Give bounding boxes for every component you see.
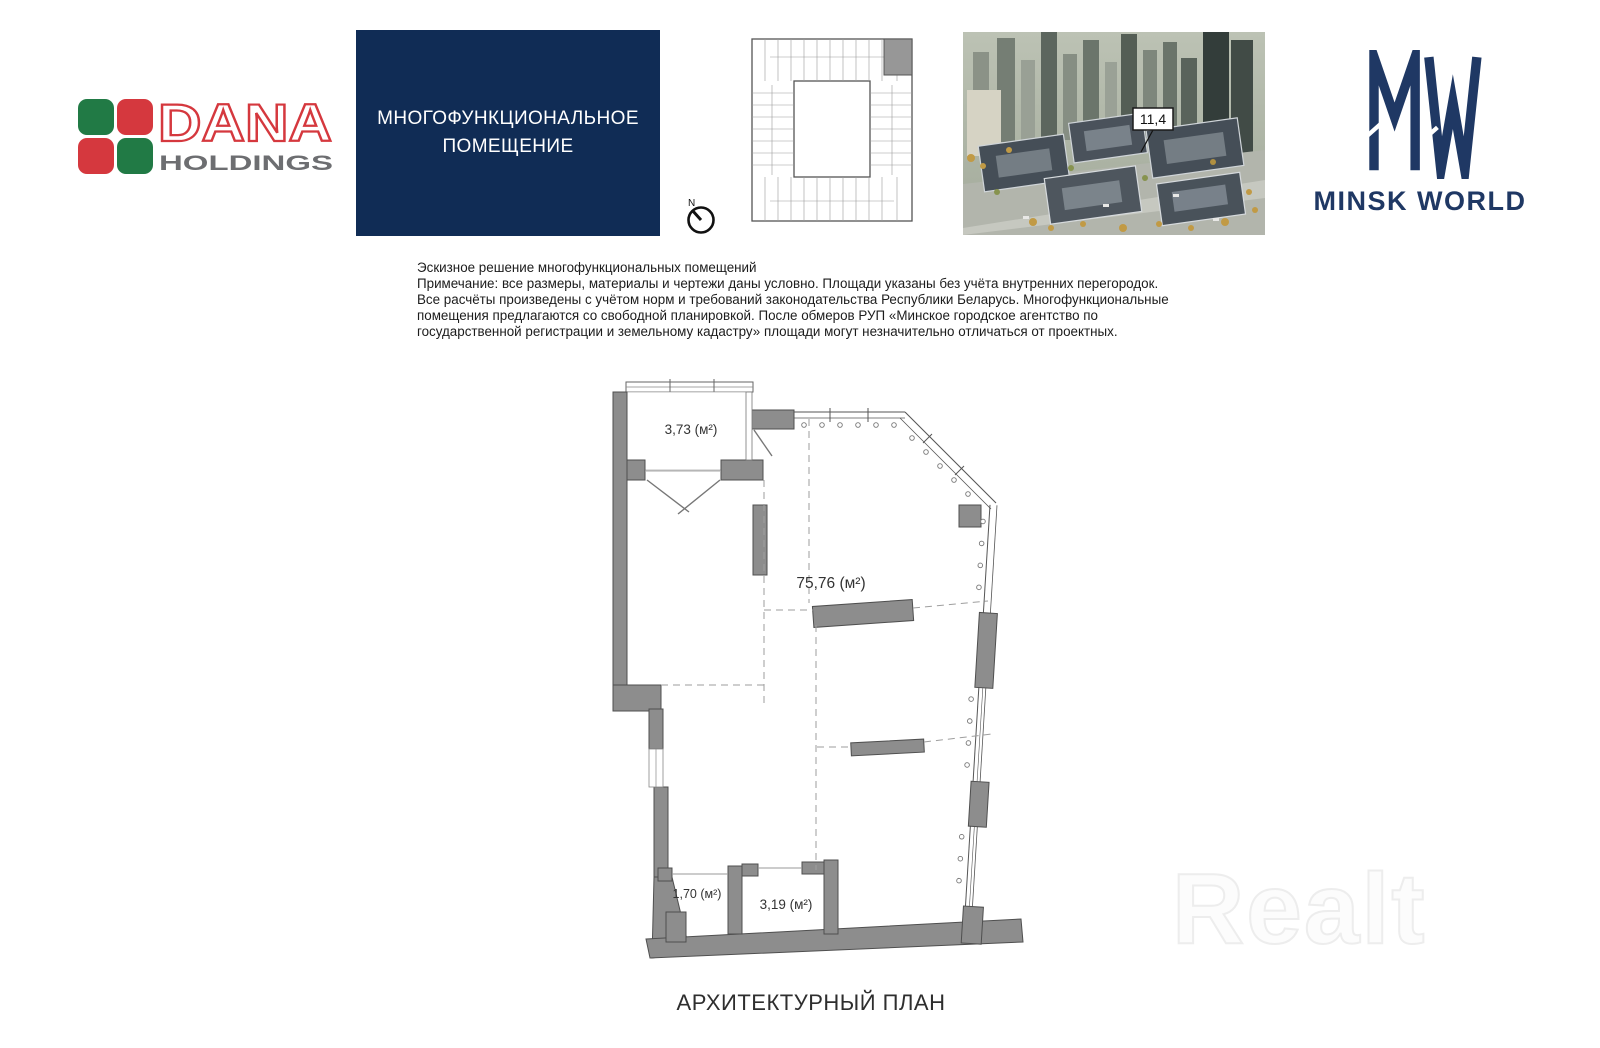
title-box: МНОГОФУНКЦИОНАЛЬНОЕ ПОМЕЩЕНИЕ xyxy=(356,30,660,236)
minsk-world-monogram-icon xyxy=(1362,50,1482,179)
notes-text: Эскизное решение многофункциональных пом… xyxy=(417,260,1229,340)
dana-subname-text: HOLDINGS xyxy=(159,151,333,175)
dana-square-red-2 xyxy=(78,138,114,174)
north-compass: N xyxy=(680,195,720,237)
minsk-world-wordmark: MINSK WORLD xyxy=(1295,186,1545,217)
dana-square-green-2 xyxy=(117,138,153,174)
realt-watermark: Realt xyxy=(1172,852,1427,967)
render-image: 11,4 xyxy=(963,32,1265,235)
key-plan xyxy=(748,33,916,225)
top-window-band xyxy=(794,408,905,427)
dana-square-red-1 xyxy=(117,99,153,135)
plan-caption: АРХИТЕКТУРНЫЙ ПЛАН xyxy=(596,990,1026,1016)
diagonal-window-band xyxy=(900,412,996,509)
north-label: N xyxy=(688,198,695,209)
right-wall xyxy=(953,504,1008,944)
storage-small-area-label: 1,70 (м²) xyxy=(673,887,722,901)
floor-plan-drawing: 3,73 (м²) 75,76 (м²) 1,70 (м²) 3,19 (м²) xyxy=(596,372,1026,968)
title-box-text: МНОГОФУНКЦИОНАЛЬНОЕ ПОМЕЩЕНИЕ xyxy=(351,105,665,160)
compass-needle-icon xyxy=(692,210,701,220)
balcony-area-label: 3,73 (м²) xyxy=(665,422,718,437)
render-building-label: 11,4 xyxy=(1140,111,1166,127)
partition-dashed-lines xyxy=(661,419,992,870)
walls xyxy=(613,392,1023,958)
main-area-label: 75,76 (м²) xyxy=(796,575,865,592)
dana-logo-squares xyxy=(78,99,154,173)
dana-logo-wordmark: DANA HOLDINGS xyxy=(156,97,336,175)
plan-sheet: DANA HOLDINGS МНОГОФУНКЦИОНАЛЬНОЕ ПОМЕЩЕ… xyxy=(0,0,1600,1048)
key-plan-highlighted-unit xyxy=(884,39,912,75)
balcony-right-partition xyxy=(746,392,752,460)
dana-square-green-1 xyxy=(78,99,114,135)
storage-large-area-label: 3,19 (м²) xyxy=(760,897,813,912)
dana-name-text: DANA xyxy=(158,97,332,153)
left-wall-window xyxy=(649,749,663,787)
